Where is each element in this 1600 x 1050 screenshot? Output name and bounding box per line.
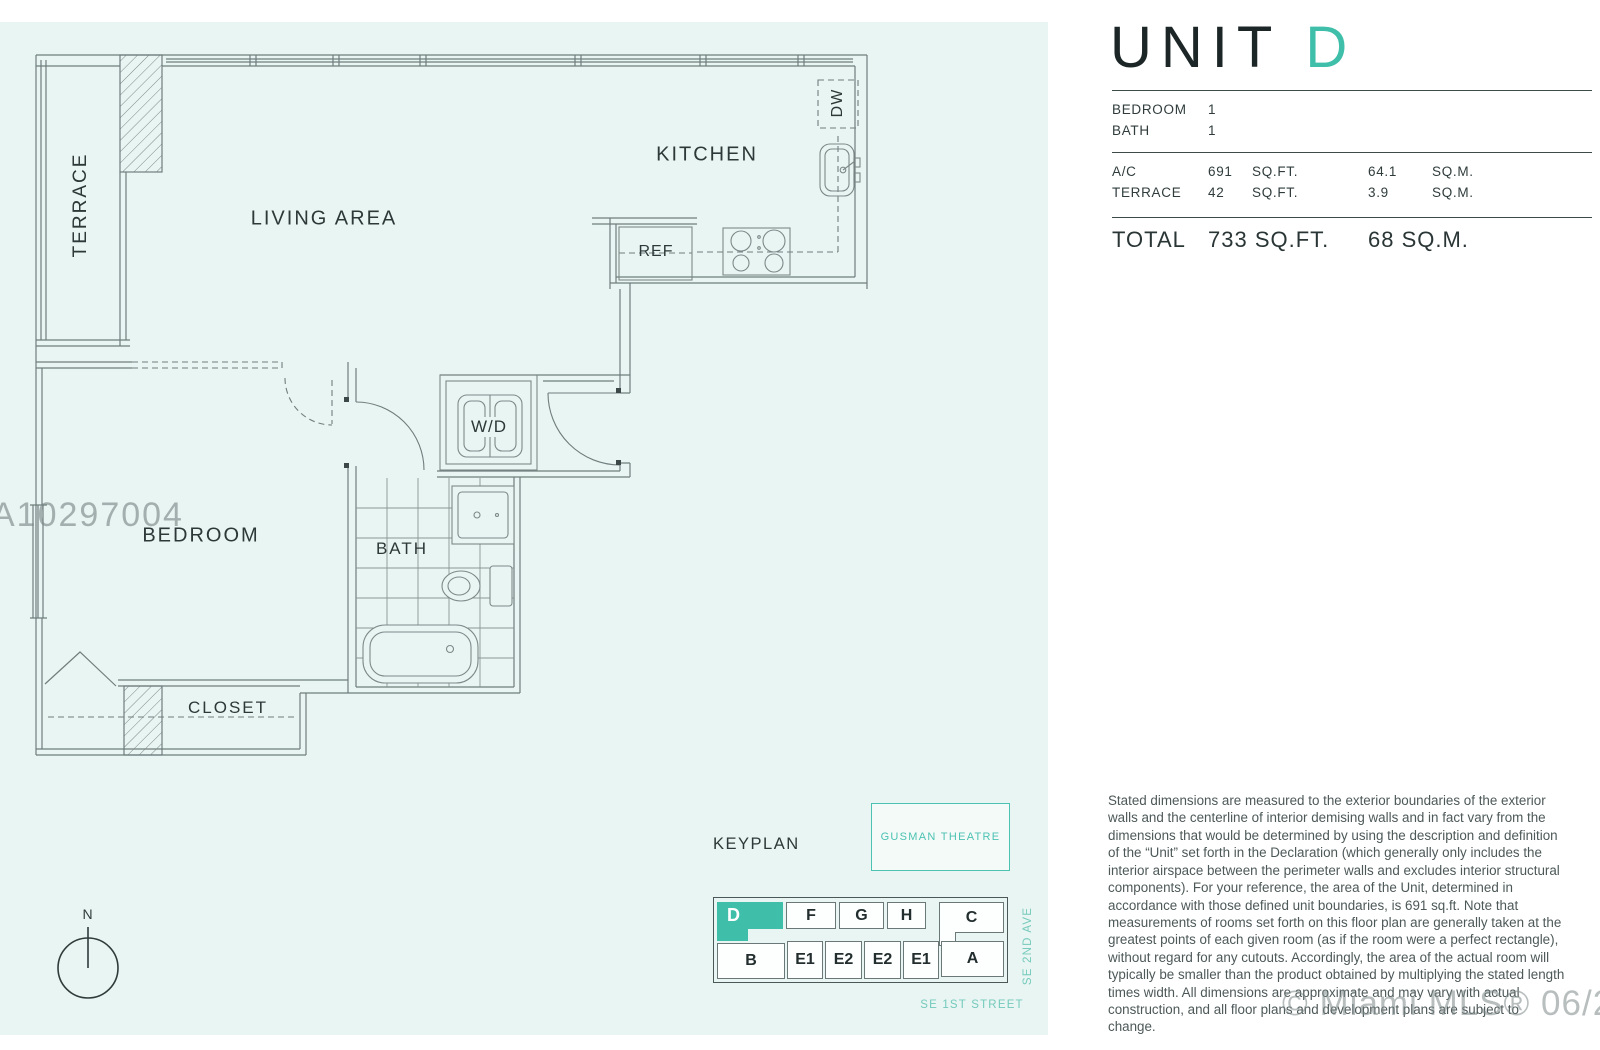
label-washer-dryer: W/D xyxy=(468,417,510,437)
mls-copyright-watermark: © Miami MLS® 06/2017 xyxy=(1282,984,1600,1024)
keyplan-unit-g: G xyxy=(839,902,884,929)
keyplan-unit-e2-left: E2 xyxy=(825,941,862,979)
terrace-area-label: TERRACE xyxy=(1112,185,1181,200)
keyplan-unit-e1-right-label: E1 xyxy=(911,951,931,969)
keyplan-unit-e1-left: E1 xyxy=(787,941,823,979)
street-label-se-1st-street: SE 1ST STREET xyxy=(920,999,1024,1011)
mls-number-watermark: A10297004 xyxy=(0,496,184,535)
label-refrigerator: REF xyxy=(639,243,674,261)
total-sqm-value: 68 SQ.M. xyxy=(1368,227,1469,253)
keyplan-unit-h-label: H xyxy=(901,907,913,925)
keyplan-unit-e2-right-label: E2 xyxy=(873,951,893,969)
keyplan-title: KEYPLAN xyxy=(713,835,800,854)
ac-area-label: A/C xyxy=(1112,164,1137,179)
keyplan-unit-c: C xyxy=(939,902,1004,933)
keyplan-unit-g-label: G xyxy=(855,907,867,925)
street-label-se-2nd-ave: SE 2ND AVE xyxy=(1022,907,1034,985)
unit-info-panel: UNIT D BEDROOM 1 BATH 1 A/C 691 SQ.FT. 6… xyxy=(1092,0,1600,1050)
bedroom-count-value: 1 xyxy=(1208,102,1216,117)
keyplan-unit-c-label: C xyxy=(966,909,978,927)
keyplan-unit-e2-left-label: E2 xyxy=(834,951,854,969)
toilet-tank xyxy=(490,566,512,606)
bedroom-count-label: BEDROOM xyxy=(1112,102,1187,117)
unit-title: UNIT D xyxy=(1110,14,1356,81)
total-label: TOTAL xyxy=(1112,227,1186,253)
keyplan-building: D F G H C B E1 E2 xyxy=(713,897,1008,983)
ac-sqft-value: 691 xyxy=(1208,164,1233,179)
keyplan-unit-e2-right: E2 xyxy=(864,941,901,979)
room-label-living-area: LIVING AREA xyxy=(251,208,398,231)
ac-sqm-unit: SQ.M. xyxy=(1432,164,1474,179)
bath-count-label: BATH xyxy=(1112,123,1150,138)
unit-title-prefix: UNIT xyxy=(1110,15,1280,80)
keyplan-unit-d-label: D xyxy=(727,905,740,926)
bath-count-value: 1 xyxy=(1208,123,1216,138)
room-label-kitchen: KITCHEN xyxy=(656,144,758,167)
keyplan-unit-e1-right: E1 xyxy=(903,941,939,979)
keyplan-unit-a: A xyxy=(941,941,1004,977)
label-dishwasher: DW xyxy=(829,89,847,118)
floor-plan-sheet: TERRACE LIVING AREA KITCHEN BEDROOM BATH… xyxy=(0,0,1600,1050)
total-sqft-value: 733 SQ.FT. xyxy=(1208,227,1329,253)
unit-title-letter: D xyxy=(1305,15,1356,80)
keyplan-unit-d-tab xyxy=(717,928,748,941)
room-label-bath: BATH xyxy=(376,539,428,559)
floor-plan-drawing: TERRACE LIVING AREA KITCHEN BEDROOM BATH… xyxy=(0,0,1048,1035)
divider-bottom xyxy=(1112,217,1592,218)
divider-middle xyxy=(1112,152,1592,153)
keyplan-unit-b: B xyxy=(717,943,785,979)
ac-sqft-unit: SQ.FT. xyxy=(1252,164,1298,179)
room-label-closet: CLOSET xyxy=(188,698,268,718)
terrace-sqm-unit: SQ.M. xyxy=(1432,185,1474,200)
divider-top xyxy=(1112,90,1592,91)
keyplan-unit-e1-left-label: E1 xyxy=(795,951,815,969)
keyplan-unit-d: D xyxy=(717,902,783,929)
terrace-sqft-unit: SQ.FT. xyxy=(1252,185,1298,200)
keyplan-unit-f: F xyxy=(786,902,836,929)
room-label-terrace: TERRACE xyxy=(70,153,92,258)
terrace-sqft-value: 42 xyxy=(1208,185,1224,200)
keyplan-theatre-box: GUSMAN THEATRE xyxy=(871,803,1010,871)
keyplan-unit-a-label: A xyxy=(967,950,979,968)
keyplan-unit-b-label: B xyxy=(745,952,757,970)
ac-sqm-value: 64.1 xyxy=(1368,164,1397,179)
north-label: N xyxy=(82,906,93,922)
terrace-sqm-value: 3.9 xyxy=(1368,185,1389,200)
keyplan-unit-h: H xyxy=(887,902,926,929)
keyplan-unit-f-label: F xyxy=(806,907,816,925)
